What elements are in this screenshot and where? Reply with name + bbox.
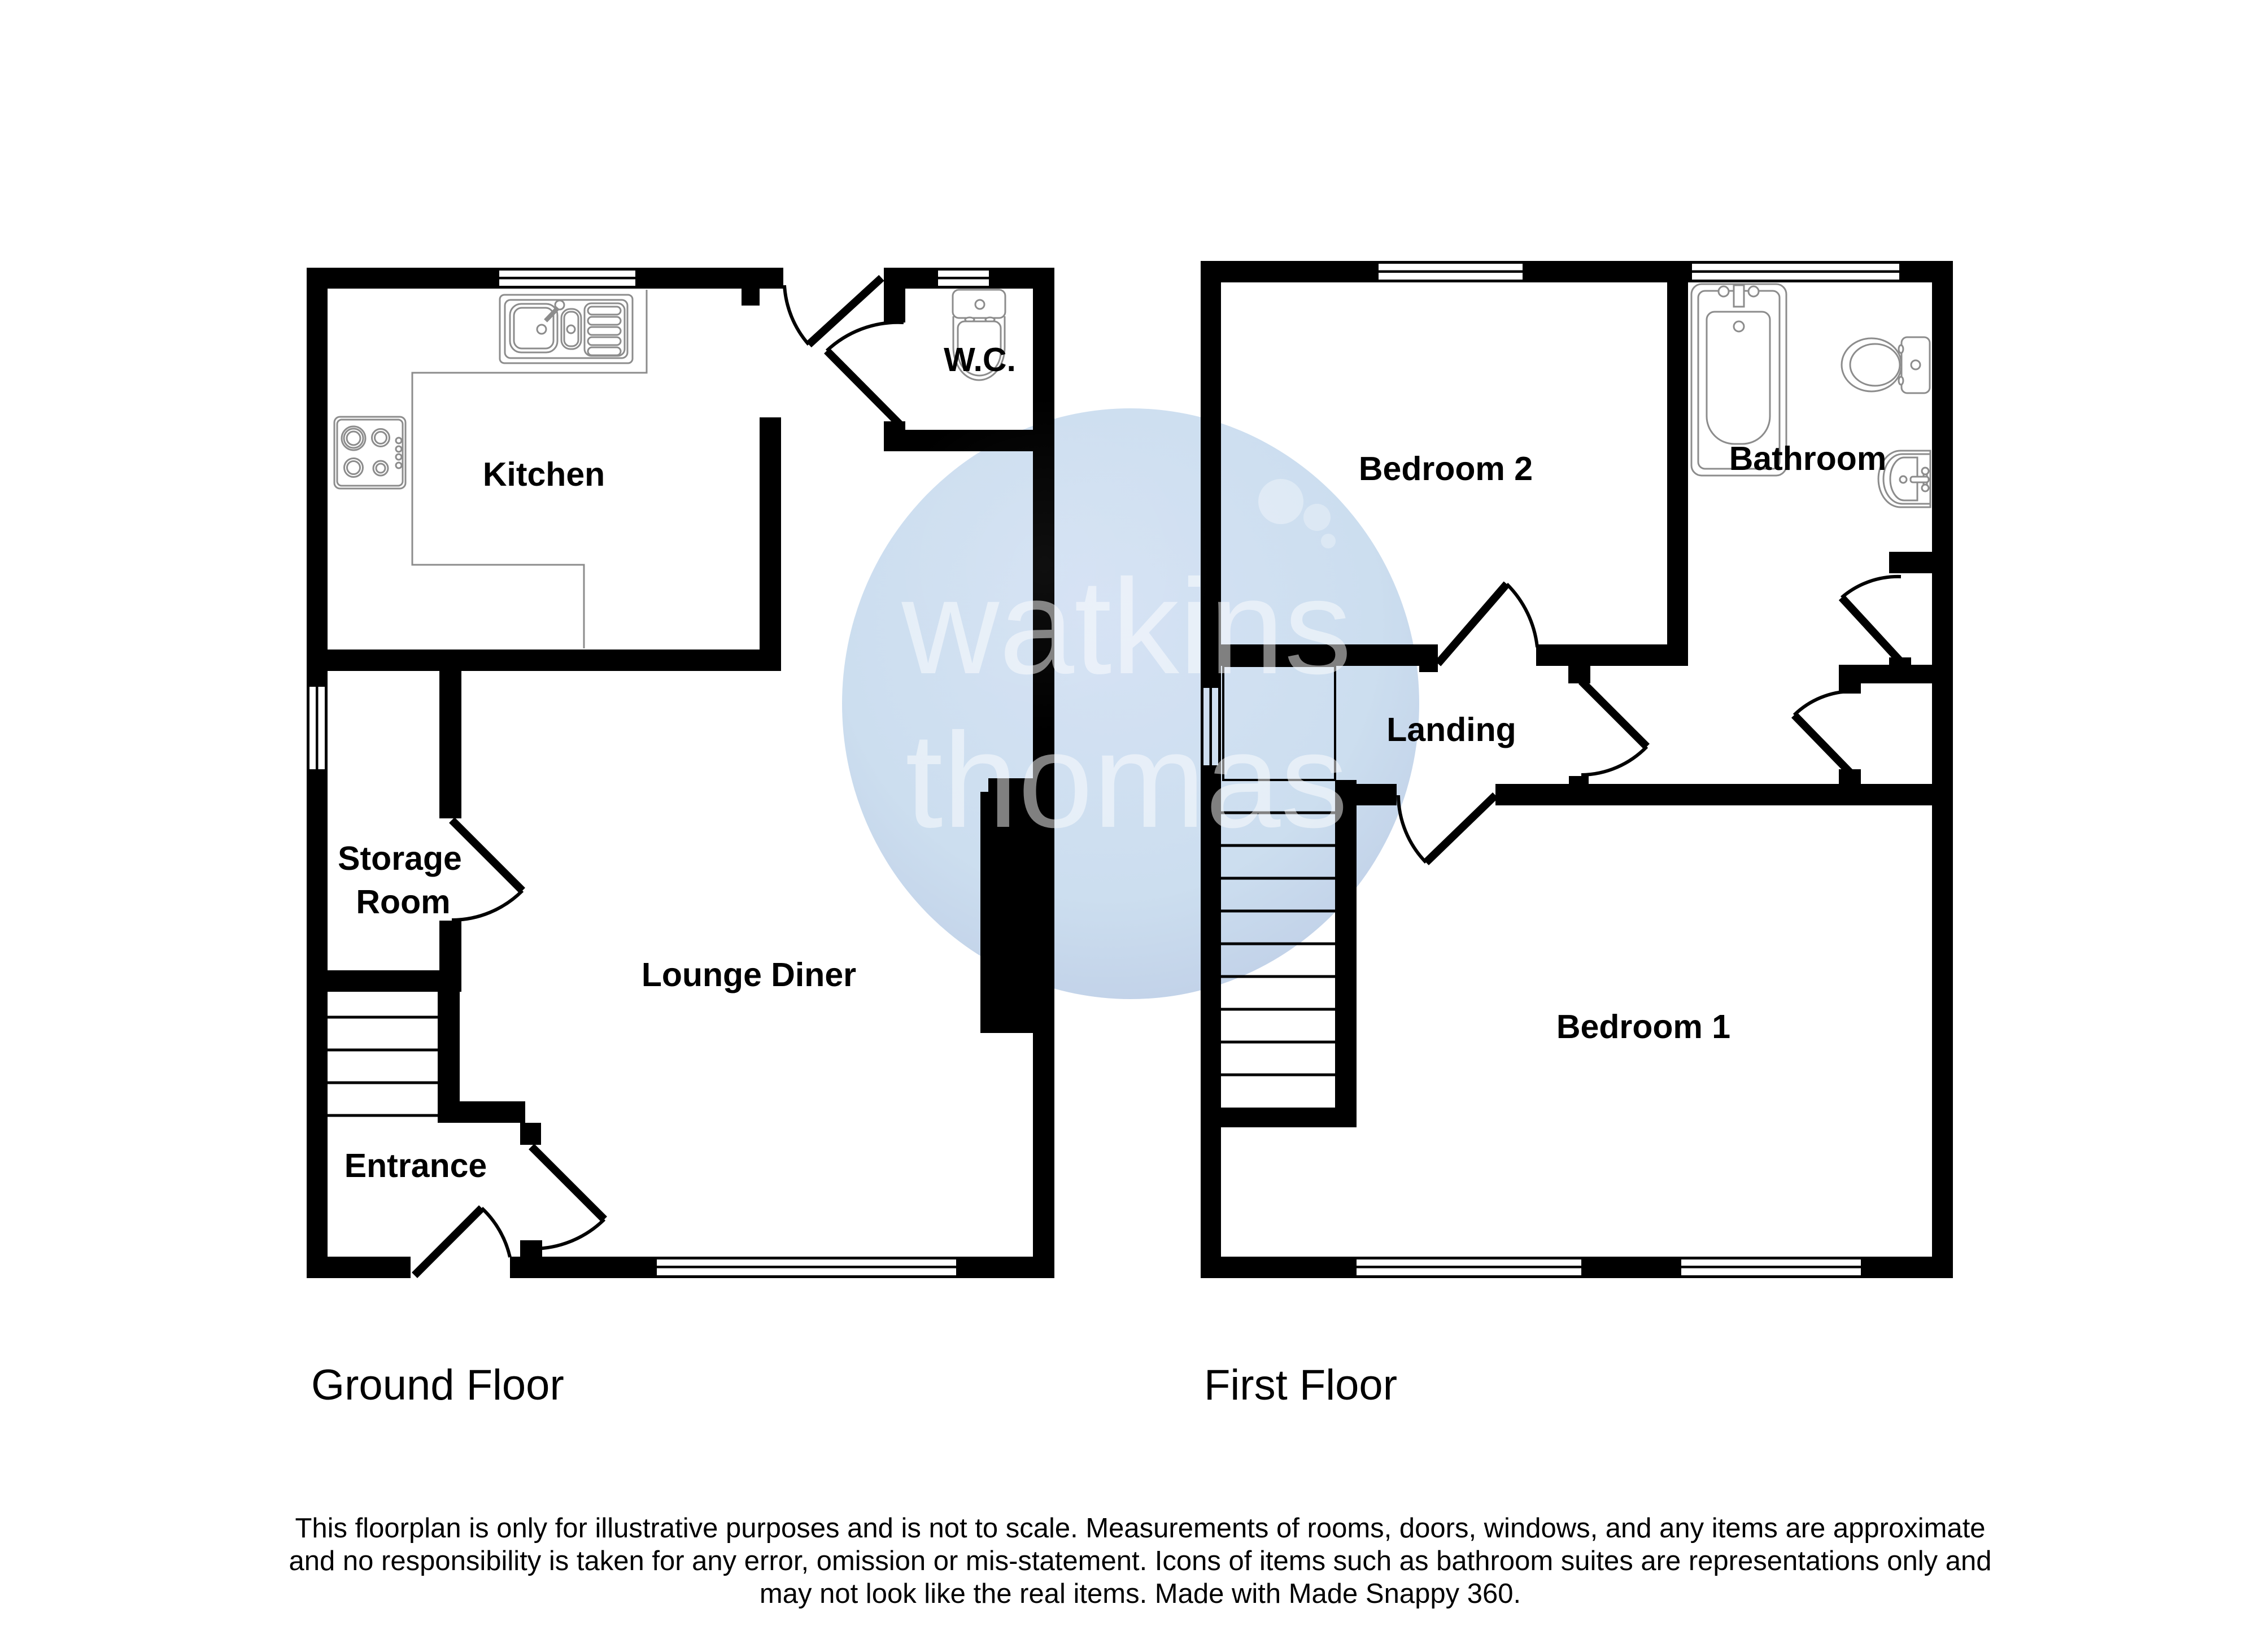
svg-text:thomas: thomas [905, 705, 1348, 856]
svg-text:Bathroom: Bathroom [1729, 440, 1887, 477]
svg-text:Bedroom 2: Bedroom 2 [1359, 450, 1533, 487]
svg-text:Lounge Diner: Lounge Diner [642, 956, 856, 993]
svg-text:Kitchen: Kitchen [483, 456, 605, 493]
svg-text:Bedroom 1: Bedroom 1 [1556, 1008, 1730, 1045]
svg-text:This floorplan is only for ill: This floorplan is only for illustrative … [295, 1513, 1985, 1544]
svg-text:Room: Room [356, 883, 450, 921]
svg-text:First Floor: First Floor [1204, 1361, 1397, 1409]
svg-text:Entrance: Entrance [344, 1147, 487, 1184]
svg-text:and no responsibility is taken: and no responsibility is taken for any e… [289, 1546, 1992, 1576]
svg-text:may not look like the real ite: may not look like the real items. Made w… [760, 1579, 1521, 1609]
svg-text:Ground Floor: Ground Floor [311, 1361, 564, 1409]
svg-text:watkins: watkins [901, 551, 1352, 702]
svg-text:W.C.: W.C. [944, 341, 1016, 378]
svg-text:Storage: Storage [338, 840, 462, 877]
